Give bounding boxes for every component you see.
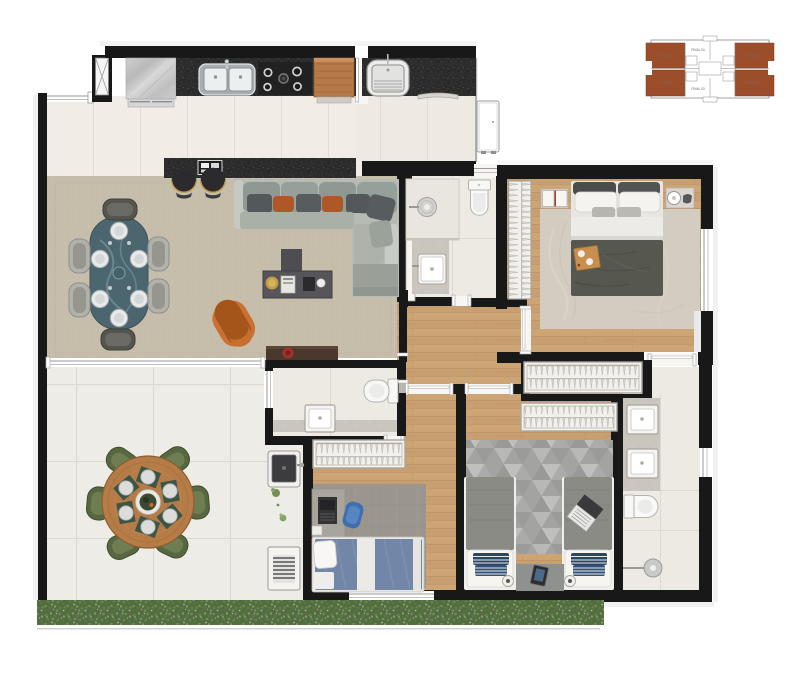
- svg-text:FINAL 06: FINAL 06: [746, 81, 760, 85]
- svg-text:FINAL 05: FINAL 05: [746, 54, 760, 58]
- svg-text:FINAL 01: FINAL 01: [659, 54, 673, 58]
- svg-text:FINAL 04: FINAL 04: [691, 48, 705, 52]
- svg-text:FINAL 02: FINAL 02: [659, 81, 673, 85]
- svg-text:FINAL 03: FINAL 03: [691, 87, 705, 91]
